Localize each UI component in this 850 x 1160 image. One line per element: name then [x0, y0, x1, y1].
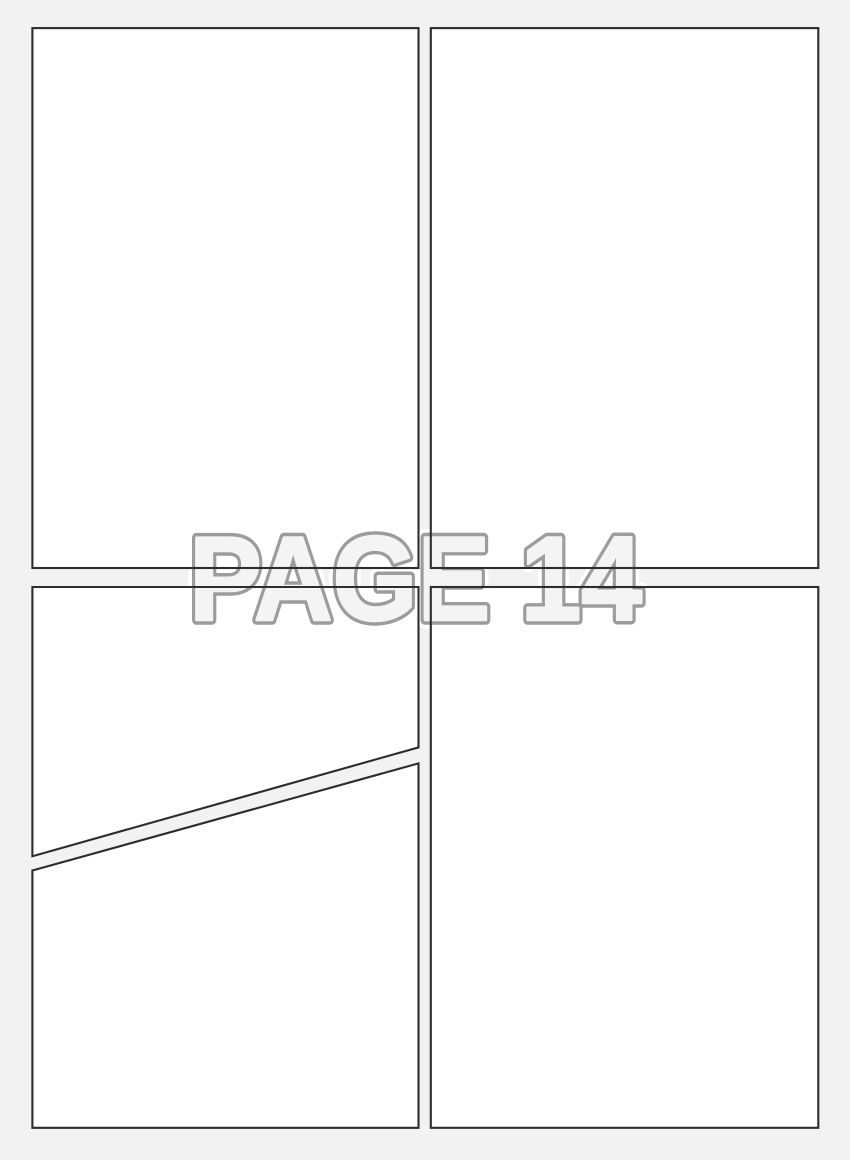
svg-text:PAGE 14: PAGE 14 [189, 513, 642, 646]
